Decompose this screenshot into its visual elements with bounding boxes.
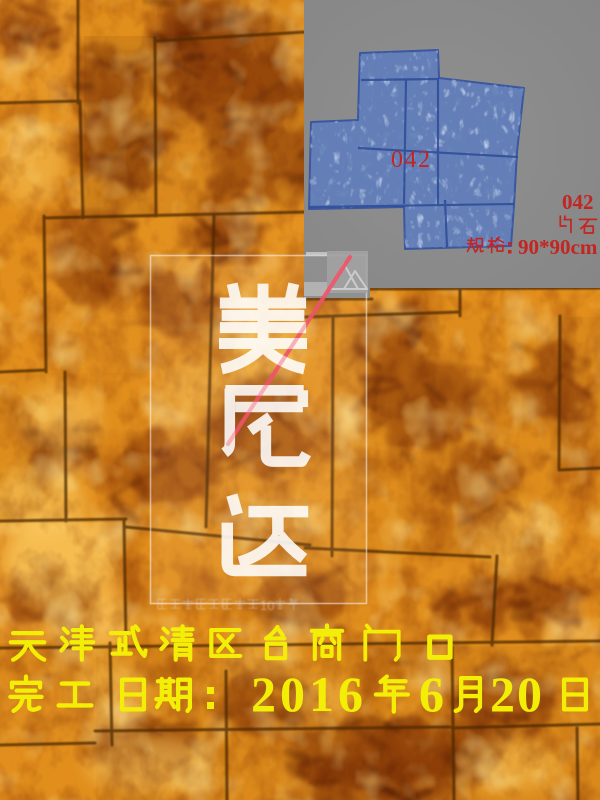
svg-text:6: 6 — [419, 666, 444, 722]
svg-text:2016: 2016 — [251, 666, 367, 722]
svg-text:20: 20 — [490, 666, 544, 722]
svg-text:10: 10 — [260, 598, 274, 613]
svg-text:90*90cm: 90*90cm — [518, 235, 598, 259]
svg-text:042: 042 — [562, 190, 594, 214]
svg-text:042: 042 — [391, 147, 432, 173]
